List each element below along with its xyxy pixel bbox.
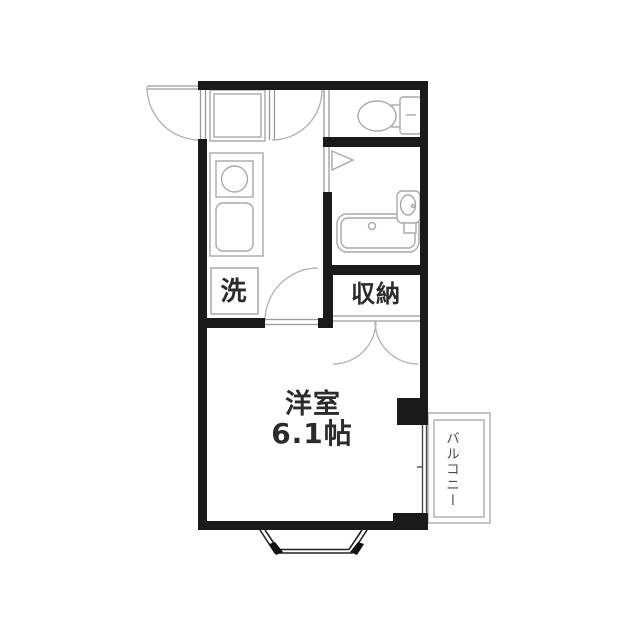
balcony-inner-rail bbox=[434, 420, 484, 517]
floor-plan-drawing: バルコニー 洗 収納 bbox=[0, 0, 640, 640]
kitchen-area: 洗 bbox=[210, 90, 265, 314]
washer-label: 洗 bbox=[220, 277, 247, 307]
toilet-partition bbox=[324, 90, 329, 137]
wall-pillar bbox=[397, 398, 428, 425]
hall-door bbox=[270, 90, 323, 140]
toilet-bowl-icon bbox=[358, 101, 396, 131]
wall-step bbox=[393, 513, 428, 530]
toilet-room bbox=[358, 97, 421, 134]
closet-label: 収納 bbox=[351, 280, 401, 308]
wall-closet-left bbox=[323, 275, 333, 318]
bathtub-drain bbox=[369, 223, 376, 230]
balcony-sliding-window bbox=[417, 425, 427, 513]
wall-bath-closet bbox=[323, 265, 428, 275]
bathroom bbox=[332, 151, 420, 252]
floor-plan-canvas: バルコニー 洗 収納 bbox=[0, 0, 640, 640]
western-room: 洋室 6.1帖 bbox=[271, 388, 353, 450]
room-door bbox=[265, 268, 318, 325]
wall-bath-left bbox=[323, 192, 332, 265]
entrance-door-arc bbox=[147, 87, 200, 140]
room-name-label: 洋室 bbox=[285, 388, 341, 420]
wall-hall-room-left bbox=[198, 318, 265, 328]
stove-burner-icon bbox=[222, 166, 248, 192]
entrance-door bbox=[147, 86, 206, 140]
wall-right bbox=[420, 81, 428, 398]
closet: 収納 bbox=[333, 280, 420, 364]
bathroom-door-opening bbox=[324, 147, 329, 192]
shoe-counter bbox=[210, 90, 265, 141]
basin-faucet bbox=[404, 223, 416, 233]
room-door-arc bbox=[265, 268, 318, 321]
balcony-label: バルコニー bbox=[443, 431, 459, 509]
hall-door-arc bbox=[272, 90, 322, 140]
shoe-counter-inner bbox=[214, 94, 261, 137]
room-size-label: 6.1帖 bbox=[271, 417, 353, 450]
balcony: バルコニー bbox=[428, 413, 490, 523]
wall-top bbox=[198, 81, 428, 90]
wall-hall-room-right bbox=[318, 318, 333, 328]
wall-toilet-bath bbox=[323, 137, 428, 147]
kitchen-sink bbox=[216, 203, 253, 251]
closet-left-door-arc bbox=[333, 321, 376, 364]
folding-door-icon bbox=[332, 151, 353, 170]
closet-right-door-arc bbox=[375, 321, 418, 364]
bay-window bbox=[260, 530, 367, 555]
wall-left bbox=[198, 139, 207, 530]
